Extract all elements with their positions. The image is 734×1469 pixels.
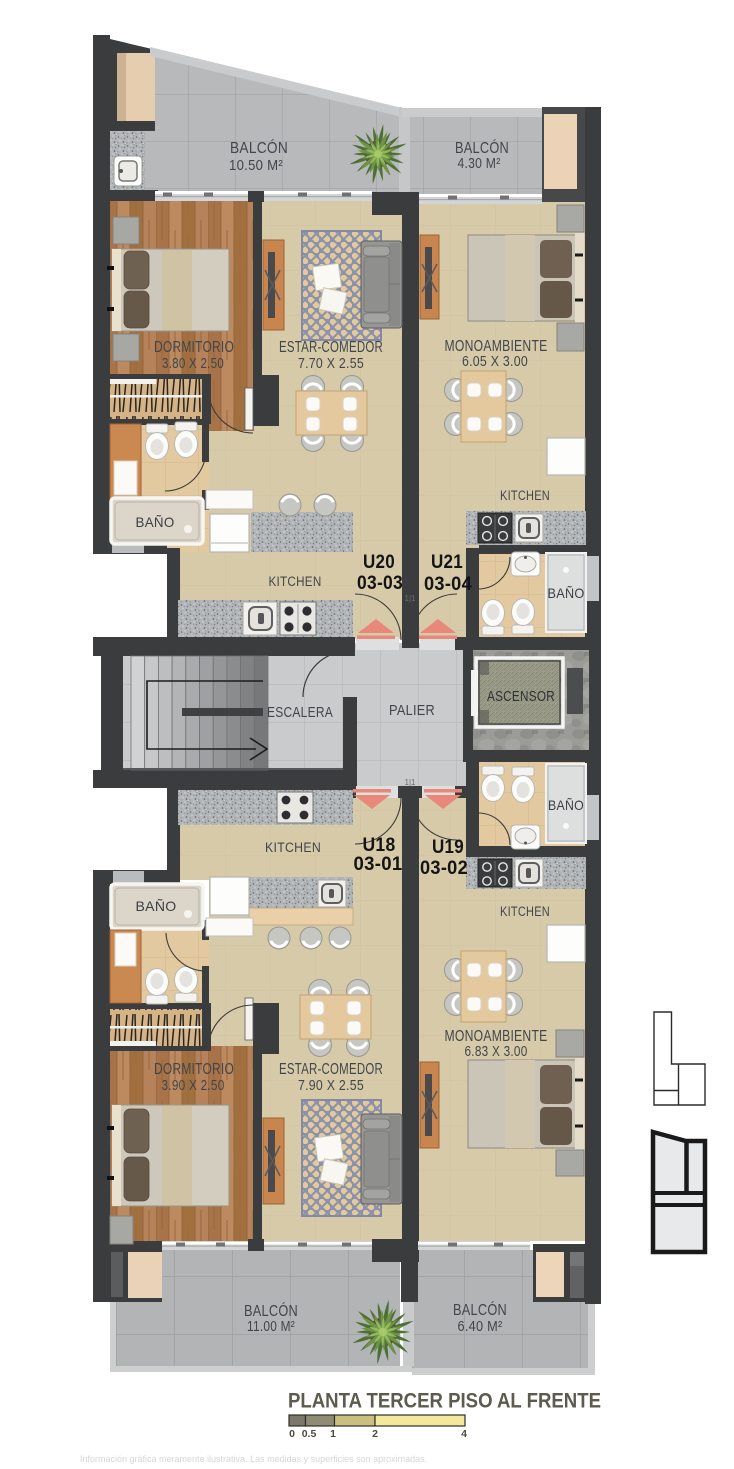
svg-text:KITCHEN: KITCHEN: [265, 840, 321, 855]
svg-text:7.70 X 2.55: 7.70 X 2.55: [298, 356, 364, 372]
svg-text:10.50 M²: 10.50 M²: [229, 158, 283, 174]
svg-text:DORMITORIO: DORMITORIO: [154, 339, 234, 356]
svg-text:U19: U19: [432, 837, 464, 858]
svg-text:03-01: 03-01: [354, 854, 403, 875]
svg-text:BALCÓN: BALCÓN: [230, 140, 288, 157]
svg-text:11.00 M²: 11.00 M²: [247, 1319, 295, 1335]
svg-text:BALCÓN: BALCÓN: [453, 1302, 507, 1319]
svg-text:6.40 M²: 6.40 M²: [458, 1319, 503, 1335]
svg-text:ESTAR-COMEDOR: ESTAR-COMEDOR: [279, 339, 383, 356]
svg-text:ESTAR-COMEDOR: ESTAR-COMEDOR: [279, 1061, 383, 1078]
svg-text:PLANTA TERCER PISO AL FRENTE: PLANTA TERCER PISO AL FRENTE: [288, 1389, 601, 1413]
svg-text:MONOAMBIENTE: MONOAMBIENTE: [445, 1028, 548, 1045]
svg-text:BAÑO: BAÑO: [548, 585, 585, 601]
svg-text:ESCALERA: ESCALERA: [267, 705, 333, 721]
svg-text:DORMITORIO: DORMITORIO: [154, 1061, 234, 1078]
svg-text:1: 1: [330, 1428, 336, 1440]
svg-text:Información gráfica meramente: Información gráfica meramente ilustrativ…: [80, 1454, 427, 1464]
svg-text:7.90 X 2.55: 7.90 X 2.55: [298, 1078, 364, 1094]
svg-text:2: 2: [372, 1428, 378, 1440]
svg-text:KITCHEN: KITCHEN: [500, 488, 550, 503]
svg-text:BALCÓN: BALCÓN: [244, 1303, 298, 1320]
svg-text:03-04: 03-04: [424, 574, 472, 595]
svg-text:6.83 X 3.00: 6.83 X 3.00: [465, 1044, 528, 1060]
svg-text:U21: U21: [431, 552, 463, 573]
svg-text:3.90 X 2.50: 3.90 X 2.50: [162, 1078, 225, 1094]
svg-text:3.80 X 2.50: 3.80 X 2.50: [162, 356, 224, 372]
svg-text:BALCÓN: BALCÓN: [455, 140, 509, 157]
svg-text:U18: U18: [363, 835, 396, 856]
svg-text:BAÑO: BAÑO: [548, 797, 584, 813]
svg-text:PALIER: PALIER: [389, 703, 435, 719]
svg-text:0.5: 0.5: [302, 1428, 317, 1440]
svg-text:BAÑO: BAÑO: [136, 898, 177, 914]
svg-text:1|1: 1|1: [405, 594, 417, 603]
svg-text:4.30 M²: 4.30 M²: [458, 156, 501, 172]
svg-text:0: 0: [289, 1428, 295, 1440]
svg-text:03-03: 03-03: [357, 573, 403, 594]
svg-text:4: 4: [461, 1428, 467, 1440]
svg-text:BAÑO: BAÑO: [136, 514, 175, 530]
svg-text:6.05 X 3.00: 6.05 X 3.00: [462, 354, 528, 370]
svg-text:U20: U20: [363, 552, 395, 573]
svg-text:MONOAMBIENTE: MONOAMBIENTE: [445, 338, 548, 355]
svg-text:03-02: 03-02: [420, 858, 468, 879]
svg-text:1|1: 1|1: [405, 778, 417, 787]
svg-text:KITCHEN: KITCHEN: [500, 904, 550, 919]
svg-text:KITCHEN: KITCHEN: [269, 574, 322, 589]
svg-text:ASCENSOR: ASCENSOR: [487, 689, 555, 705]
